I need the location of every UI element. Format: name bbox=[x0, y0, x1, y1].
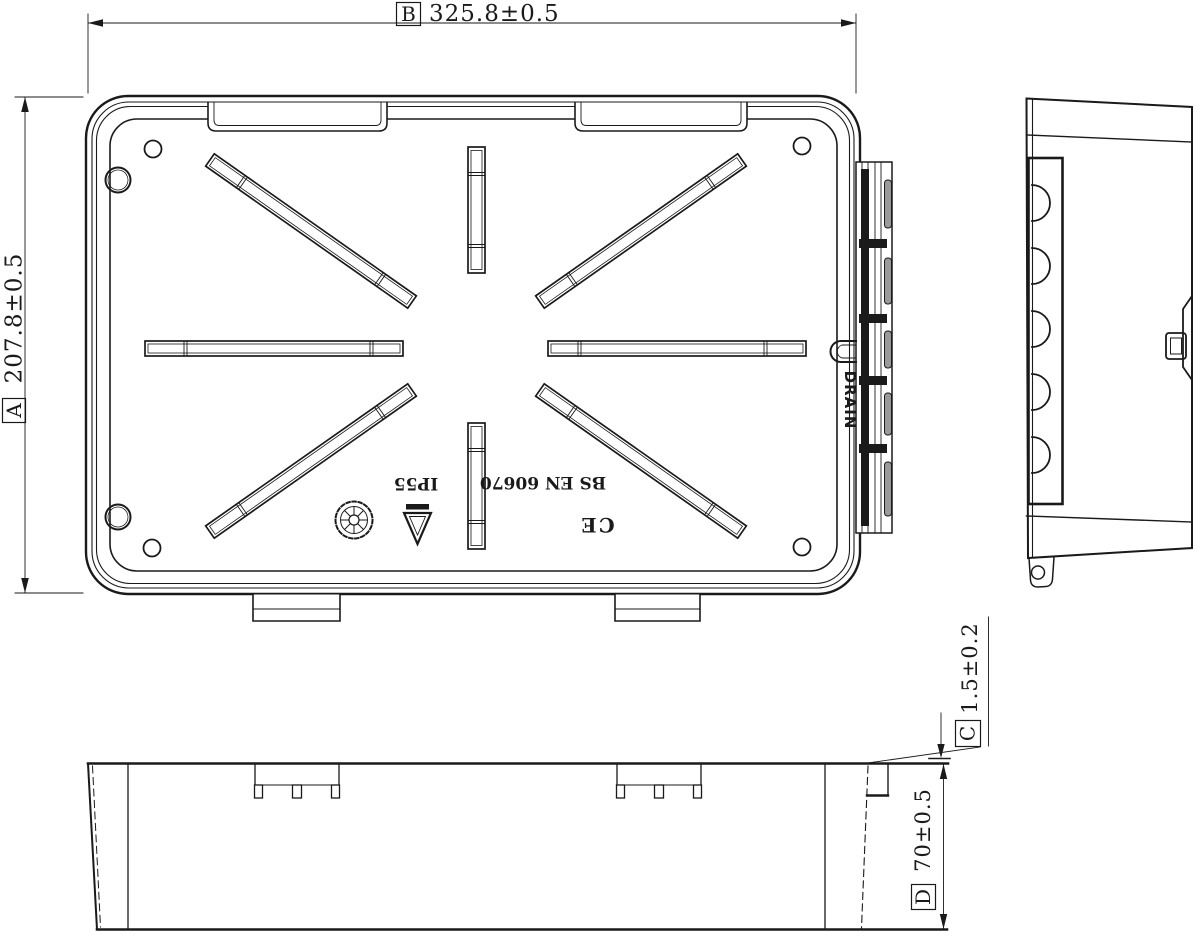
dimension-value: 70±0.5 bbox=[911, 788, 935, 872]
hinge-strip-segment bbox=[861, 385, 869, 444]
hinge-strip-bar bbox=[859, 314, 887, 323]
datum-letter: C bbox=[956, 726, 980, 741]
ip-rating-marking: IP55 bbox=[394, 473, 438, 493]
hinge-strip-bar bbox=[859, 376, 887, 385]
hinge-strip-segment bbox=[861, 453, 869, 526]
hinge-strip-segment bbox=[861, 323, 869, 376]
hinge-strip-bar bbox=[859, 239, 887, 248]
dimension-value: 1.5±0.2 bbox=[958, 622, 982, 713]
hinge-strip-bar bbox=[859, 444, 887, 453]
drain-label: DRAIN bbox=[841, 371, 859, 430]
hinge-knuckle bbox=[885, 393, 892, 435]
dimension-value: 325.8±0.5 bbox=[429, 1, 560, 27]
hinge-strip-segment bbox=[861, 248, 869, 314]
drawing-background bbox=[0, 0, 1200, 937]
standard-marking: BS EN 60670 bbox=[480, 472, 606, 492]
hinge-knuckle bbox=[885, 331, 892, 368]
dimension-value: 207.8±0.5 bbox=[2, 253, 28, 384]
hinge-knuckle bbox=[885, 180, 892, 228]
hinge-tab bbox=[253, 595, 340, 622]
datum-letter: A bbox=[2, 403, 26, 419]
enclosure-technical-drawing: DRAIN IP55 BS EN 60670 CE bbox=[0, 0, 1200, 937]
hinge-knuckle bbox=[885, 462, 892, 516]
datum-letter: B bbox=[401, 2, 416, 26]
hinge-strip bbox=[856, 162, 892, 533]
hinge-strip-segment bbox=[861, 169, 869, 239]
hinge-tab bbox=[615, 595, 700, 622]
datum-letter: D bbox=[911, 889, 935, 905]
lid-clip-slot bbox=[575, 103, 747, 131]
ce-mark: CE bbox=[579, 513, 614, 537]
lid-clip-slot bbox=[208, 103, 387, 131]
hinge-knuckle bbox=[885, 258, 892, 304]
